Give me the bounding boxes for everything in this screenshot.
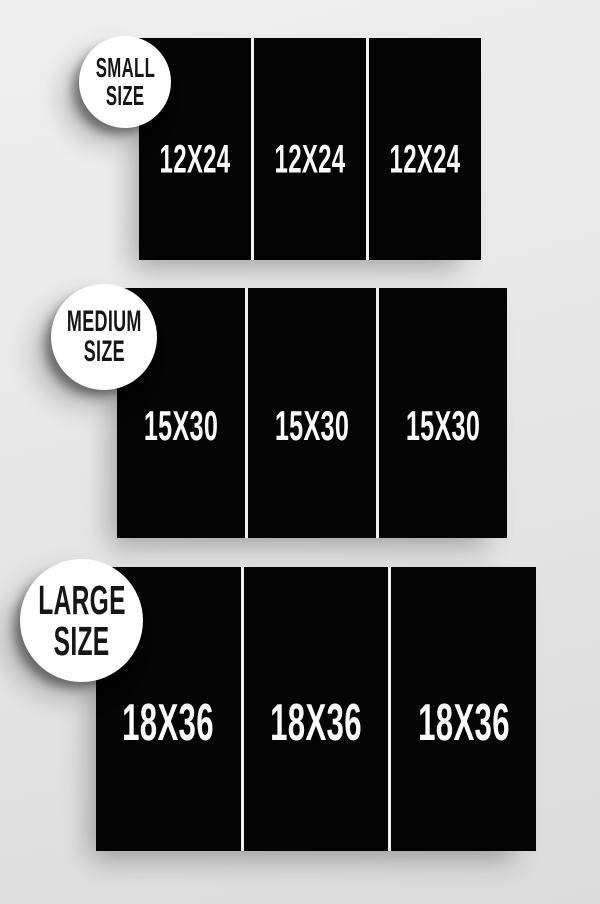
- panel-size-label: 15X30: [275, 402, 349, 450]
- badge-label-line2: SIZE: [106, 82, 145, 110]
- panel-size-label: 18X36: [270, 693, 362, 753]
- panel-large-3: 18X36: [391, 567, 536, 851]
- badge-label-line2: SIZE: [83, 337, 124, 367]
- panel-small-3: 12X24: [369, 38, 481, 260]
- panel-size-label: 12X24: [160, 138, 231, 183]
- panel-large-2: 18X36: [244, 567, 389, 851]
- panel-small-2: 12X24: [254, 38, 366, 260]
- badge-large-size: LARGE SIZE: [20, 559, 143, 682]
- panel-size-label: 12X24: [390, 138, 461, 183]
- panel-size-label: 12X24: [275, 138, 346, 183]
- panel-size-label: 15X30: [406, 402, 480, 450]
- size-group-large: 18X36 18X36 18X36: [96, 567, 536, 851]
- size-group-medium: 15X30 15X30 15X30: [117, 288, 507, 538]
- badge-medium-size: MEDIUM SIZE: [51, 284, 157, 390]
- badge-label-line1: LARGE: [38, 580, 126, 621]
- panel-size-label: 18X36: [418, 693, 510, 753]
- panel-medium-2: 15X30: [248, 288, 376, 538]
- badge-label-line1: MEDIUM: [67, 307, 142, 337]
- size-group-small: 12X24 12X24 12X24: [139, 38, 481, 260]
- badge-label-line1: SMALL: [95, 54, 154, 82]
- panel-medium-3: 15X30: [379, 288, 507, 538]
- panel-size-label: 15X30: [144, 402, 218, 450]
- panel-size-label: 18X36: [122, 693, 214, 753]
- size-chart-background: 12X24 12X24 12X24 SMALL SIZE 15X30 15X30…: [0, 0, 600, 904]
- badge-label-line2: SIZE: [54, 621, 110, 662]
- badge-small-size: SMALL SIZE: [79, 36, 171, 128]
